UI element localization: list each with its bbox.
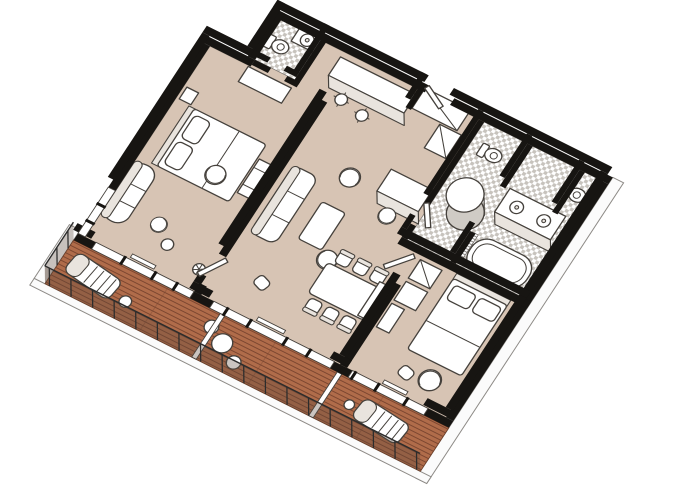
isometric-projection [30,0,629,484]
armchair-icon [418,369,442,391]
suite-floor-plan-image [0,0,680,486]
floor-plan-illustration [0,0,680,486]
bathroom-door [424,203,431,228]
